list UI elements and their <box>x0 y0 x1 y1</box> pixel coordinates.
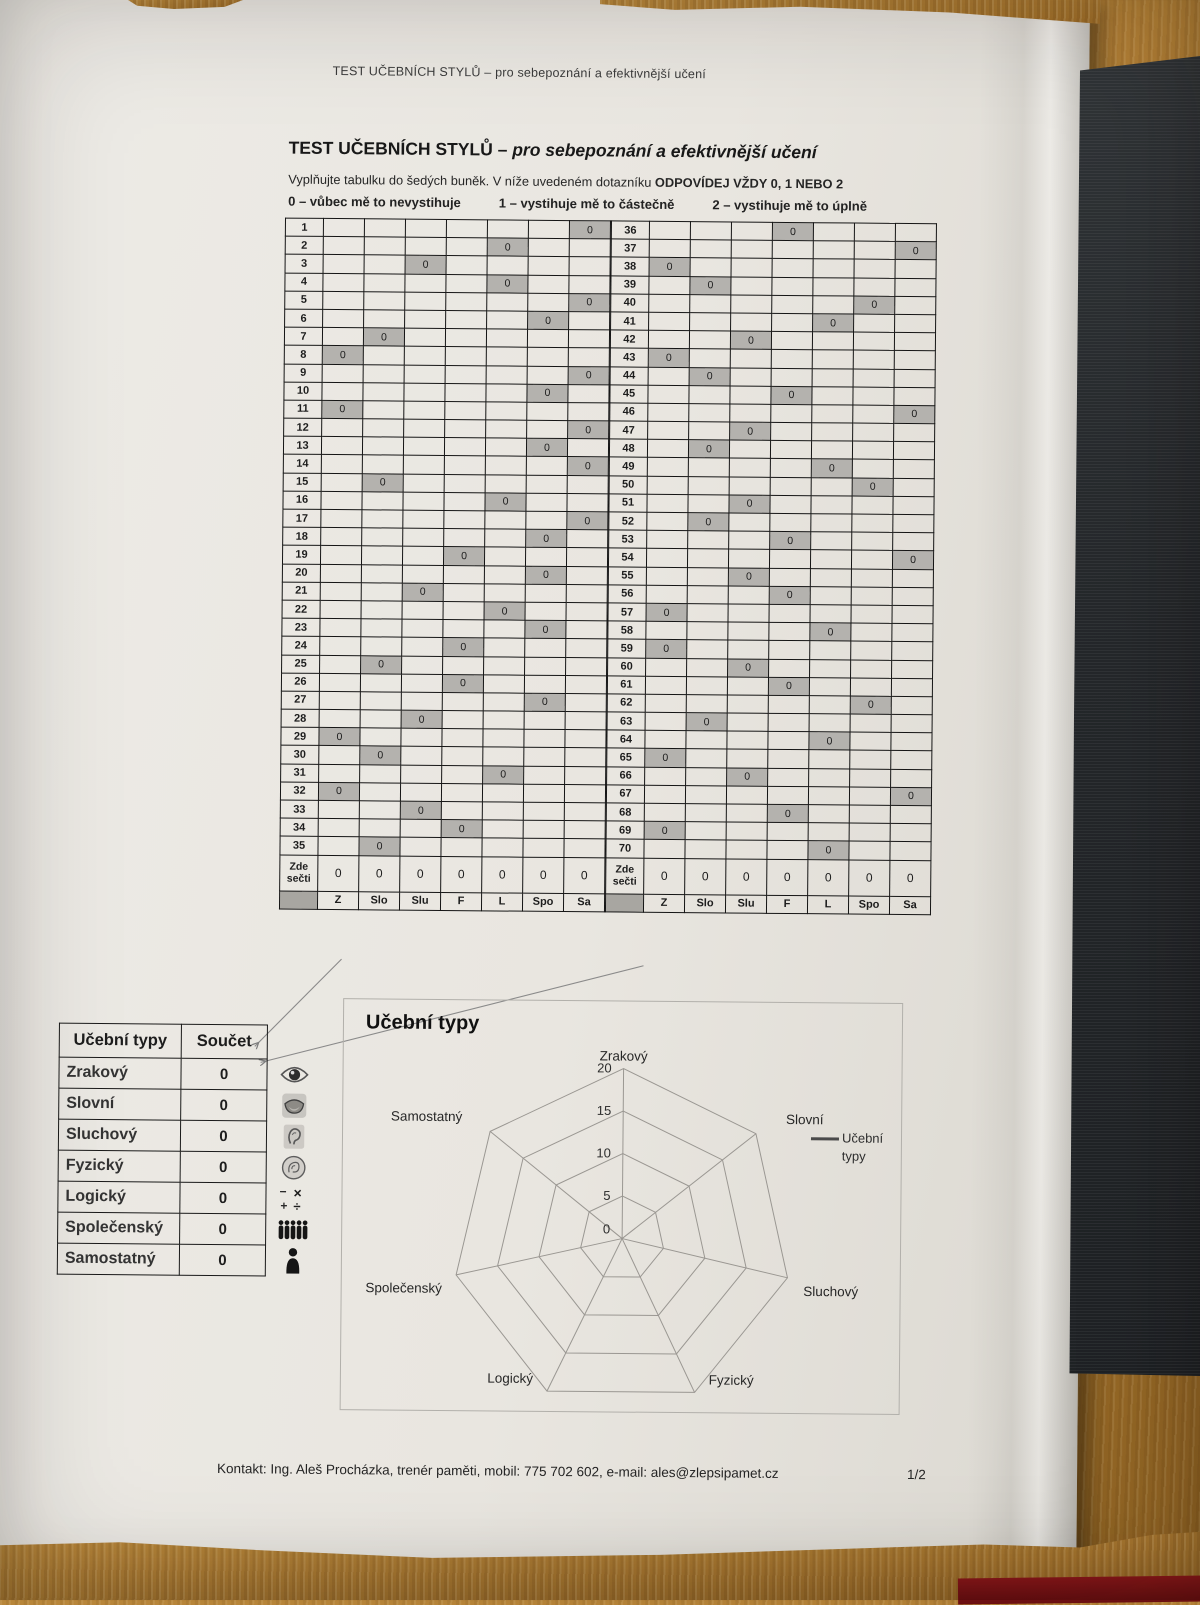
radar-spoke <box>456 1237 622 1276</box>
answer-cell <box>566 566 607 585</box>
marked-answer-cell: 0 <box>689 367 730 386</box>
marked-answer-cell: 0 <box>808 841 849 860</box>
answer-cell <box>361 619 402 638</box>
answer-cell <box>812 350 853 369</box>
answer-cell <box>364 273 405 292</box>
marked-answer-cell: 0 <box>892 551 933 570</box>
sum-cell: 0 <box>890 860 931 896</box>
answer-cell <box>809 714 850 733</box>
marked-answer-cell: 0 <box>568 421 609 440</box>
answer-cell <box>890 824 931 843</box>
answer-cell <box>727 695 768 714</box>
answer-cell <box>813 223 854 242</box>
question-number: 44 <box>610 366 648 385</box>
answer-cell <box>320 546 361 565</box>
marked-answer-cell: 0 <box>401 710 442 729</box>
answer-cell <box>688 476 729 495</box>
learning-type-label: Zrakový <box>59 1057 181 1089</box>
answer-cell <box>402 546 443 565</box>
answer-cell <box>483 711 524 730</box>
red-object-edge <box>958 1575 1200 1604</box>
answer-cell <box>810 550 851 569</box>
answer-cell <box>645 694 686 713</box>
answer-cell <box>647 476 688 495</box>
column-header: Sa <box>889 896 930 914</box>
answer-cell <box>441 838 482 857</box>
question-number: 8 <box>284 345 322 364</box>
question-number: 10 <box>284 382 322 401</box>
question-number: 1 <box>285 218 323 237</box>
answer-cell <box>444 510 485 529</box>
answer-cell <box>771 422 812 441</box>
answer-cell <box>809 768 850 787</box>
learning-type-label: Logický <box>58 1181 180 1213</box>
chart-legend: Učební typy <box>811 1129 897 1165</box>
answer-cell <box>401 747 442 766</box>
answer-cell <box>444 474 485 493</box>
answer-cell <box>853 369 894 388</box>
answer-cell <box>405 237 446 256</box>
answer-cell <box>400 837 441 856</box>
answer-cell <box>567 493 608 512</box>
answer-cell <box>727 677 768 696</box>
answer-cell <box>849 787 890 806</box>
answer-cell <box>486 420 527 439</box>
sum-cell: 0 <box>400 856 441 892</box>
answer-cell <box>809 677 850 696</box>
answer-cell <box>485 438 526 457</box>
chart-title: Učební typy <box>366 1011 480 1035</box>
question-number: 51 <box>609 494 647 513</box>
running-header: TEST UČEBNÍCH STYLŮ – pro sebepoznání a … <box>0 61 1049 84</box>
marked-answer-cell: 0 <box>525 566 566 585</box>
learning-type-icons: −×+÷ <box>276 1059 312 1276</box>
answer-cell <box>403 528 444 547</box>
question-number: 40 <box>611 294 649 313</box>
answer-cell <box>360 692 401 711</box>
answer-cell <box>811 441 852 460</box>
answer-cell <box>402 601 443 620</box>
marked-answer-cell: 0 <box>768 677 809 696</box>
answer-cell <box>730 349 771 368</box>
question-number: 43 <box>610 348 648 367</box>
answer-cell <box>891 714 932 733</box>
column-header: Slu <box>725 895 766 913</box>
learning-type-label: Slovní <box>59 1088 181 1120</box>
answer-cell <box>810 568 851 587</box>
answer-cell <box>487 293 528 312</box>
marked-answer-cell: 0 <box>568 366 609 385</box>
answer-cell <box>444 492 485 511</box>
answer-cell <box>446 310 487 329</box>
summary-row: Společenský0 <box>58 1212 266 1245</box>
answer-cell <box>442 711 483 730</box>
answer-cell <box>770 477 811 496</box>
question-number: 29 <box>281 727 319 746</box>
answer-cell <box>566 657 607 676</box>
legend-line-swatch <box>811 1137 839 1140</box>
marked-answer-cell: 0 <box>727 768 768 787</box>
answer-cell <box>568 348 609 367</box>
answer-cell <box>813 241 854 260</box>
answer-cell <box>364 237 405 256</box>
scale-option: 2 – vystihuje mě to úplně <box>712 197 867 213</box>
sum-cell: 0 <box>849 860 890 896</box>
instructions: Vyplňujte tabulku do šedých buněk. V níž… <box>288 172 843 192</box>
questionnaire-table-right: 3603703803904004104204304404504604704804… <box>605 220 937 914</box>
answer-cell <box>890 805 931 824</box>
answer-cell <box>892 642 933 661</box>
answer-cell <box>527 329 568 348</box>
answer-cell <box>362 510 403 529</box>
question-number: 9 <box>284 364 322 383</box>
answer-cell <box>321 491 362 510</box>
radar-chart-box: Učební typy 05101520ZrakovýSlovníSluchov… <box>340 998 904 1415</box>
answer-cell <box>851 550 892 569</box>
answer-cell <box>400 783 441 802</box>
answer-cell <box>688 458 729 477</box>
answer-cell <box>853 332 894 351</box>
question-number: 20 <box>282 564 320 583</box>
sum-cell: 0 <box>685 858 726 894</box>
answer-cell <box>892 605 933 624</box>
question-number: 32 <box>280 782 318 801</box>
answer-cell <box>891 733 932 752</box>
answer-cell <box>689 403 730 422</box>
answer-cell <box>443 601 484 620</box>
answer-cell <box>322 382 363 401</box>
answer-cell <box>441 783 482 802</box>
answer-cell <box>323 291 364 310</box>
answer-cell <box>768 750 809 769</box>
answer-cell <box>690 240 731 259</box>
answer-cell <box>647 440 688 459</box>
marked-answer-cell: 0 <box>850 696 891 715</box>
answer-cell <box>893 442 934 461</box>
answer-cell <box>685 804 726 823</box>
answer-cell <box>484 584 525 603</box>
answer-cell <box>525 548 566 567</box>
answer-cell <box>688 494 729 513</box>
answer-cell <box>851 641 892 660</box>
answer-cell <box>730 404 771 423</box>
question-number: 22 <box>282 600 320 619</box>
answer-cell <box>323 255 364 274</box>
answer-cell <box>891 769 932 788</box>
answer-cell <box>485 456 526 475</box>
marked-answer-cell: 0 <box>527 384 568 403</box>
answer-cell <box>689 385 730 404</box>
question-number: 4 <box>285 273 323 292</box>
answer-cell <box>727 731 768 750</box>
marked-answer-cell: 0 <box>767 804 808 823</box>
answer-cell <box>442 765 483 784</box>
marked-answer-cell: 0 <box>441 820 482 839</box>
answer-cell <box>483 675 524 694</box>
question-number: 23 <box>282 618 320 637</box>
answer-cell <box>811 514 852 533</box>
answer-cell <box>362 528 403 547</box>
column-header-row: ZSloSluFLSpoSa <box>605 893 930 914</box>
answer-cell <box>769 659 810 678</box>
answer-cell <box>482 838 523 857</box>
answer-cell <box>688 531 729 550</box>
question-number: 19 <box>282 545 320 564</box>
answer-cell <box>854 223 895 242</box>
answer-cell <box>851 605 892 624</box>
marked-answer-cell: 0 <box>688 440 729 459</box>
marked-answer-cell: 0 <box>567 512 608 531</box>
answer-cell <box>893 478 934 497</box>
answer-cell <box>728 549 769 568</box>
answer-cell <box>527 420 568 439</box>
answer-cell <box>523 820 564 839</box>
answer-cell <box>322 364 363 383</box>
answer-cell <box>568 330 609 349</box>
question-number: 27 <box>281 691 319 710</box>
answer-cell <box>730 386 771 405</box>
answer-cell <box>895 223 936 242</box>
marked-answer-cell: 0 <box>728 658 769 677</box>
question-number: 61 <box>607 676 645 695</box>
answer-cell <box>808 786 849 805</box>
answer-cell <box>894 369 935 388</box>
answer-cell <box>484 547 525 566</box>
marked-answer-cell: 0 <box>487 274 528 293</box>
question-number: 55 <box>608 566 646 585</box>
answer-cell <box>442 729 483 748</box>
answer-scale-legend: 0 – vůbec mě to nevystihuje1 – vystihuje… <box>288 194 867 214</box>
answer-cell <box>482 820 523 839</box>
answer-cell <box>646 585 687 604</box>
answer-cell <box>323 218 364 237</box>
marked-answer-cell: 0 <box>443 638 484 657</box>
answer-cell <box>854 241 895 260</box>
answer-cell <box>528 293 569 312</box>
answer-cell <box>322 328 363 347</box>
paper-sheet: TEST UČEBNÍCH STYLŮ – pro sebepoznání a … <box>0 0 1090 1580</box>
answer-cell <box>893 460 934 479</box>
marked-answer-cell: 0 <box>854 296 895 315</box>
answer-cell <box>484 565 525 584</box>
answer-cell <box>770 513 811 532</box>
answer-cell <box>486 365 527 384</box>
answer-cell <box>769 641 810 660</box>
answer-cell <box>443 565 484 584</box>
answer-cell <box>851 623 892 642</box>
answer-cell <box>895 260 936 279</box>
answer-cell <box>689 422 730 441</box>
sum-cell: 0 <box>767 859 808 895</box>
marked-answer-cell: 0 <box>485 493 526 512</box>
answer-cell <box>772 259 813 278</box>
answer-cell <box>810 586 851 605</box>
answer-cell <box>686 731 727 750</box>
answer-cell <box>854 259 895 278</box>
answer-cell <box>405 274 446 293</box>
answer-cell <box>320 655 361 674</box>
question-number: 39 <box>611 275 649 294</box>
answer-cell <box>687 622 728 641</box>
answer-cell <box>729 440 770 459</box>
answer-cell <box>360 728 401 747</box>
answer-cell <box>812 423 853 442</box>
marked-answer-cell: 0 <box>361 655 402 674</box>
answer-cell <box>485 529 526 548</box>
radar-axis-label: Slovní <box>786 1112 824 1127</box>
answer-cell <box>810 659 851 678</box>
answer-cell <box>648 385 689 404</box>
answer-cell <box>687 604 728 623</box>
summary-row: Zrakový0 <box>59 1057 267 1090</box>
answer-cell <box>644 785 685 804</box>
question-number: 62 <box>607 694 645 713</box>
answer-cell <box>569 239 610 258</box>
question-number: 18 <box>283 527 321 546</box>
answer-cell <box>323 237 364 256</box>
answer-cell <box>404 401 445 420</box>
answer-cell <box>523 784 564 803</box>
answer-cell <box>320 637 361 656</box>
learning-type-total: 0 <box>180 1182 266 1214</box>
answer-cell <box>771 404 812 423</box>
radar-axis-label: Zrakový <box>600 1048 648 1063</box>
answer-cell <box>768 695 809 714</box>
math-icon: −×+÷ <box>276 1183 310 1214</box>
answer-cell <box>687 658 728 677</box>
answer-cell <box>685 822 726 841</box>
answer-cell <box>769 550 810 569</box>
answer-cell <box>405 219 446 238</box>
question-number: 21 <box>282 582 320 601</box>
question-number: 67 <box>606 785 644 804</box>
marked-answer-cell: 0 <box>487 238 528 257</box>
question-number: 5 <box>285 291 323 310</box>
marked-answer-cell: 0 <box>569 293 610 312</box>
question-number: 53 <box>609 530 647 549</box>
answer-cell <box>690 222 731 241</box>
answer-cell <box>645 712 686 731</box>
question-number: 13 <box>283 436 321 455</box>
answer-cell <box>524 711 565 730</box>
answer-cell <box>812 368 853 387</box>
answer-cell <box>566 621 607 640</box>
answer-cell <box>364 255 405 274</box>
column-header: L <box>807 895 848 913</box>
mouth-icon <box>277 1090 311 1121</box>
svg-text:−: − <box>279 1185 286 1198</box>
marked-answer-cell: 0 <box>645 749 686 768</box>
answer-cell <box>319 764 360 783</box>
marked-answer-cell: 0 <box>895 242 936 261</box>
answer-cell <box>649 312 690 331</box>
answer-cell <box>646 621 687 640</box>
answer-cell <box>404 365 445 384</box>
answer-cell <box>646 658 687 677</box>
answer-cell <box>686 676 727 695</box>
scale-option: 0 – vůbec mě to nevystihuje <box>288 194 461 211</box>
answer-cell <box>731 313 772 332</box>
answer-cell <box>569 257 610 276</box>
answer-cell <box>446 238 487 257</box>
answer-cell <box>649 239 690 258</box>
answer-cell <box>690 313 731 332</box>
answer-cell <box>566 548 607 567</box>
answer-cell <box>567 475 608 494</box>
marked-answer-cell: 0 <box>690 276 731 295</box>
answer-cell <box>813 277 854 296</box>
answer-cell <box>813 259 854 278</box>
answer-cell <box>361 637 402 656</box>
answer-cell <box>811 477 852 496</box>
answer-cell <box>526 493 567 512</box>
answer-cell <box>485 511 526 530</box>
answer-cell <box>767 841 808 860</box>
column-header: Spo <box>522 893 563 911</box>
learning-type-total: 0 <box>180 1213 266 1245</box>
questionnaire-table-left: 1020304050607080901001101201301401501601… <box>279 218 611 912</box>
marked-answer-cell: 0 <box>402 583 443 602</box>
answer-cell <box>892 660 933 679</box>
question-number: 48 <box>609 439 647 458</box>
answer-cell <box>565 675 606 694</box>
answer-cell <box>644 803 685 822</box>
sum-cell: 0 <box>564 857 605 893</box>
question-number: 38 <box>611 257 649 276</box>
summary-header-row: Učební typySoučet <box>59 1023 267 1059</box>
sum-cell: 0 <box>359 855 400 891</box>
answer-cell <box>403 492 444 511</box>
answer-cell <box>729 458 770 477</box>
answer-cell <box>403 474 444 493</box>
answer-cell <box>689 331 730 350</box>
answer-cell <box>852 496 893 515</box>
answer-cell <box>443 583 484 602</box>
question-number: 2 <box>285 236 323 255</box>
eye-icon <box>277 1059 311 1090</box>
answer-cell <box>892 624 933 643</box>
question-number: 50 <box>609 476 647 495</box>
answer-cell <box>648 421 689 440</box>
answer-cell <box>686 749 727 768</box>
radar-axis-label: Společenský <box>365 1280 442 1296</box>
answer-cell <box>728 622 769 641</box>
marked-answer-cell: 0 <box>484 602 525 621</box>
marked-answer-cell: 0 <box>322 346 363 365</box>
marked-answer-cell: 0 <box>319 728 360 747</box>
question-number: 35 <box>280 836 318 855</box>
marked-answer-cell: 0 <box>567 457 608 476</box>
answer-cell <box>849 805 890 824</box>
answer-cell <box>318 837 359 856</box>
header-corner-cell <box>279 891 317 909</box>
answer-cell <box>441 801 482 820</box>
answer-cell <box>854 278 895 297</box>
answer-cell <box>405 310 446 329</box>
answer-cell <box>566 639 607 658</box>
answer-cell <box>731 258 772 277</box>
marked-answer-cell: 0 <box>400 801 441 820</box>
sum-cell: 0 <box>808 859 849 895</box>
answer-cell <box>404 346 445 365</box>
answer-cell <box>445 401 486 420</box>
marked-answer-cell: 0 <box>813 314 854 333</box>
learning-type-label: Fyzický <box>58 1150 180 1182</box>
answer-cell <box>484 638 525 657</box>
answer-cell <box>524 766 565 785</box>
answer-cell <box>731 240 772 259</box>
answer-cell <box>403 456 444 475</box>
